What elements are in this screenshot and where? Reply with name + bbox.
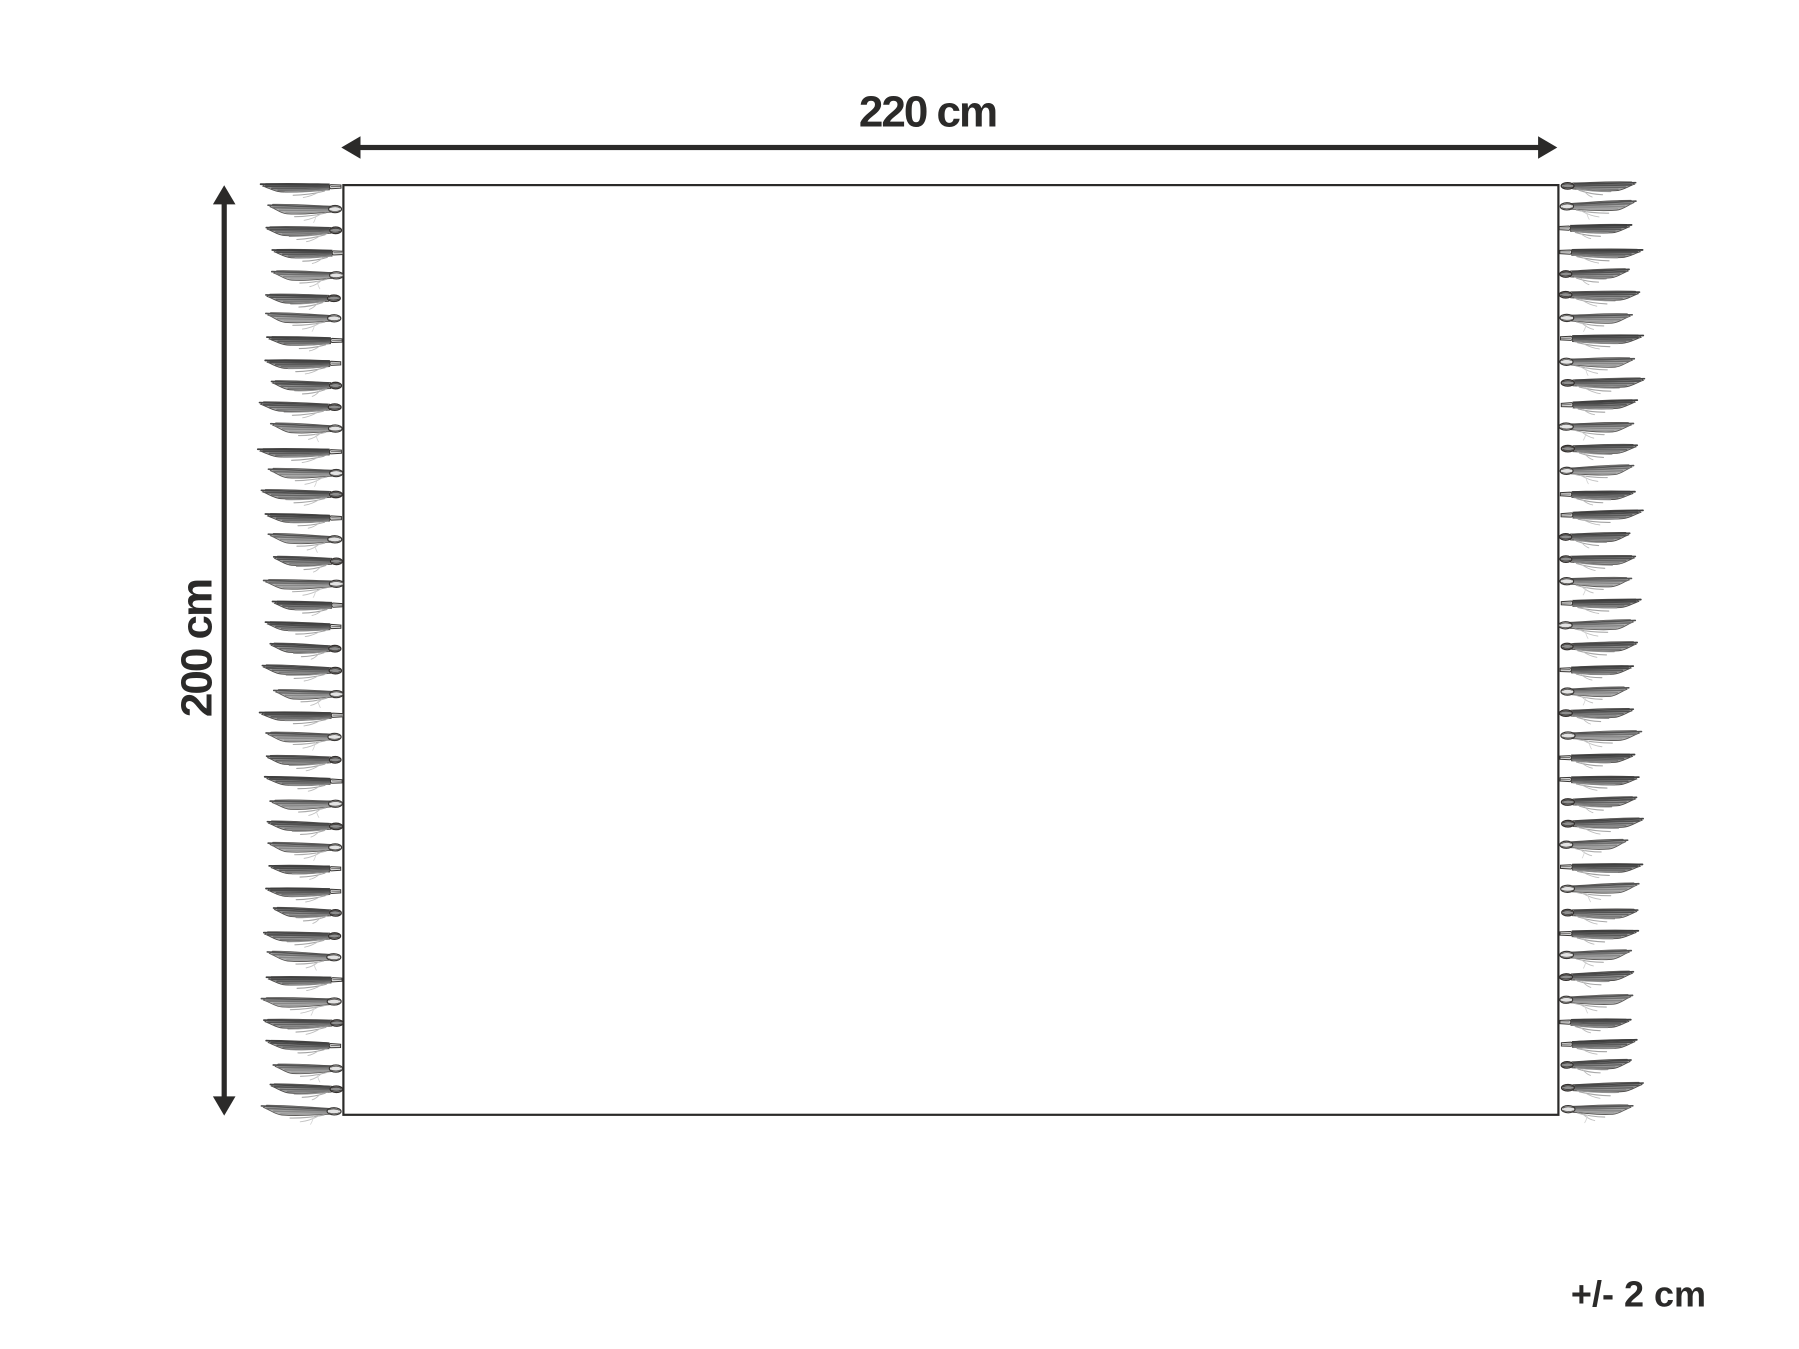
svg-text:200 cm: 200 cm [173, 580, 222, 717]
svg-text:+/- 2 cm: +/- 2 cm [1571, 1274, 1706, 1315]
svg-text:220 cm: 220 cm [859, 88, 996, 137]
